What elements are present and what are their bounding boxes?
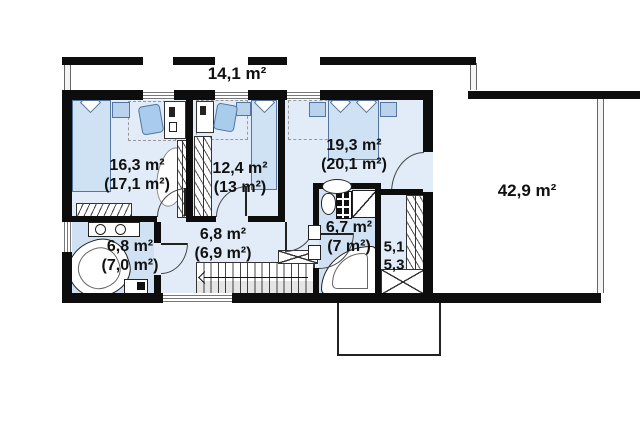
washbasin-symbol [308,245,321,260]
porch-outline [337,301,441,356]
window [62,222,72,252]
wall-segment [313,268,319,293]
bedroom-left-area-label: 16,3 m² (17,1 m²) [104,157,170,195]
area-value: 6,7 m² [326,219,372,238]
balcony-railing-left [64,63,71,90]
washbasin-symbol [308,225,321,240]
balcony-area-label: 14,1 m² [208,64,267,84]
wall-segment [186,216,216,222]
wall-segment [423,192,433,303]
area-value: 12,4 m² [212,160,267,179]
area-total-value: (7,0 m²) [102,257,159,276]
nightstand-symbol [309,102,326,117]
door-leaf [285,222,287,251]
wall-segment [381,189,423,195]
staircase [196,262,315,295]
wardrobe-area-label: 5,1 5,3 [384,238,405,273]
window [287,90,320,100]
room-middle-area-label: 12,4 m² (13 m²) [212,160,267,198]
toilet-symbol [321,193,336,215]
washbasin-counter-symbol [88,222,140,237]
wall-segment [186,100,193,222]
window [163,293,232,303]
wall-segment [248,216,285,222]
wall-segment [62,90,72,303]
area-value: 6,8 m² [102,238,159,257]
area-value: 14,1 m² [208,64,267,84]
terrace-wall-top [468,91,640,99]
area-value: 5,1 [384,238,405,256]
area-total-value: (6,9 m²) [195,245,252,264]
area-value: 19,3 m² [321,137,387,156]
wall-segment [278,100,285,222]
wall-segment [375,189,381,293]
sink-symbol [322,179,352,194]
area-total-value: (13 m²) [212,179,267,198]
area-total-value: 5,3 [384,256,405,274]
chair-symbol [138,103,165,135]
balcony-parapet [62,57,143,65]
terrace-railing [597,97,604,293]
area-value: 16,3 m² [104,157,170,176]
window [143,90,174,100]
shelf-symbol [336,191,352,219]
bathroom-right-area-label: 6,7 m² (7 m²) [326,219,372,257]
door-leaf [161,243,187,245]
bathroom-left-area-label: 6,8 m² (7,0 m²) [102,238,159,276]
wall-segment [72,216,157,222]
wardrobe-symbol [194,136,212,218]
nightstand-symbol [380,102,397,117]
area-value: 42,9 m² [498,181,557,201]
wall-segment [62,293,601,303]
area-total-value: (20,1 m²) [321,156,387,175]
area-value: 6,8 m² [195,226,252,245]
shelf-symbol [164,101,186,139]
wall-segment [154,275,161,293]
hallway-area-label: 6,8 m² (6,9 m²) [195,226,252,264]
terrace-area-label: 42,9 m² [498,181,557,201]
shower-symbol [352,190,377,218]
stair-direction-line [204,277,308,278]
washer-symbol [124,279,148,294]
wall-segment [423,90,433,152]
nightstand-symbol [236,102,251,116]
balcony-parapet [320,57,476,65]
shelf-symbol [196,101,214,133]
area-total-value: (7 m²) [326,238,372,257]
area-total-value: (17,1 m²) [104,176,170,195]
balcony-railing-right [470,63,477,90]
window [215,90,248,100]
floor-plan: 14,1 m² 16,3 m² (17,1 m²) 12,4 m² (13 m²… [0,0,640,421]
nightstand-symbol [112,102,130,118]
bedroom-right-area-label: 19,3 m² (20,1 m²) [321,137,387,175]
